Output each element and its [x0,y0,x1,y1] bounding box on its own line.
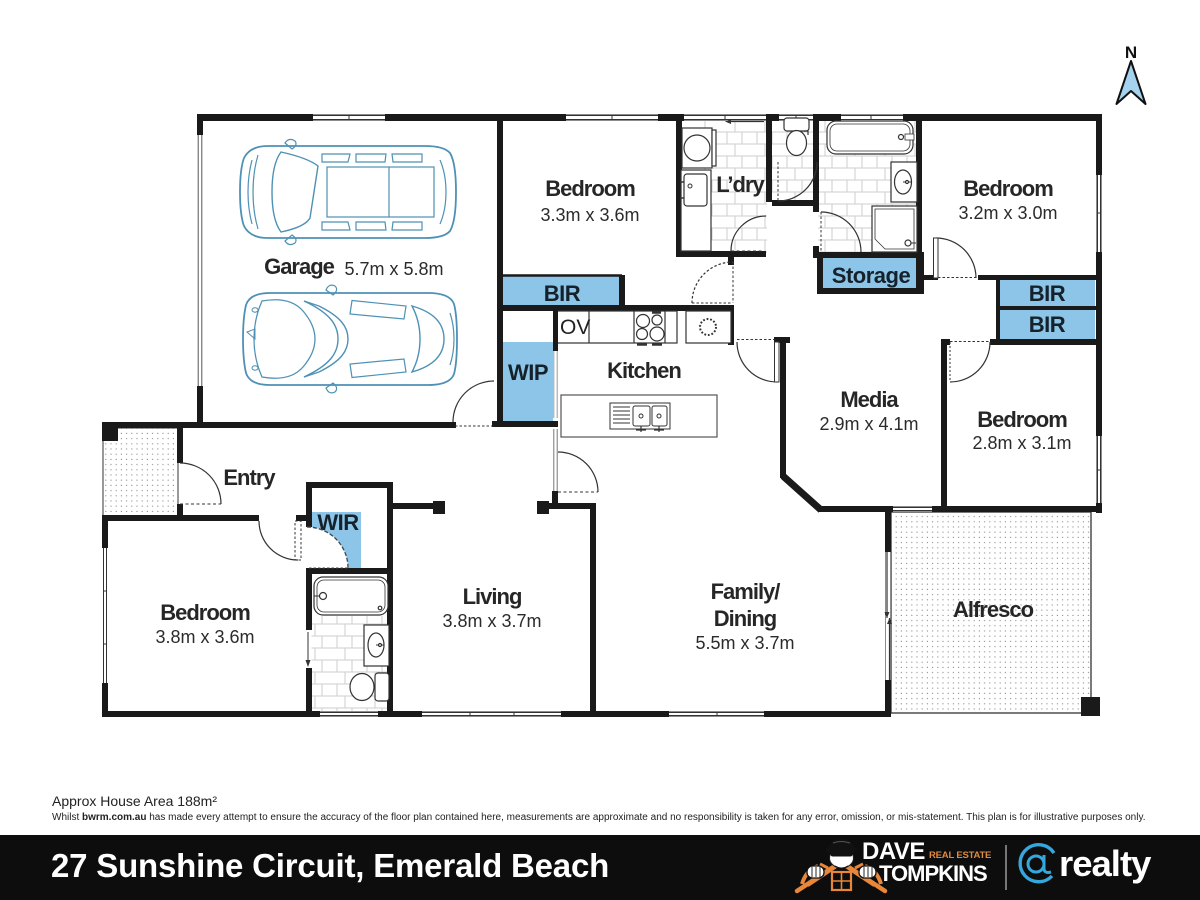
svg-text:2.8m x 3.1m: 2.8m x 3.1m [972,433,1071,453]
svg-text:5.7m x 5.8m: 5.7m x 5.8m [344,259,443,279]
svg-text:BIR: BIR [1029,312,1066,337]
svg-text:OV: OV [560,316,590,339]
svg-text:Whilst bwrm.com.au has made ev: Whilst bwrm.com.au has made every attemp… [52,812,1145,823]
svg-text:L’dry: L’dry [716,172,765,197]
svg-text:Kitchen: Kitchen [607,358,681,383]
svg-text:3.8m x 3.7m: 3.8m x 3.7m [442,611,541,631]
svg-text:Bedroom: Bedroom [977,407,1067,432]
svg-text:27 Sunshine Circuit, Emerald B: 27 Sunshine Circuit, Emerald Beach [51,847,609,884]
svg-text:3.3m x 3.6m: 3.3m x 3.6m [540,205,639,225]
svg-text:Media: Media [840,387,899,412]
svg-text:Living: Living [463,584,522,609]
svg-text:5.5m x 3.7m: 5.5m x 3.7m [695,633,794,653]
svg-text:TOMPKINS: TOMPKINS [879,861,987,886]
svg-text:Bedroom: Bedroom [963,176,1053,201]
svg-text:BIR: BIR [1029,281,1066,306]
svg-text:Entry: Entry [223,465,276,490]
svg-text:WIP: WIP [508,360,548,385]
svg-text:Family/: Family/ [711,579,781,604]
svg-text:realty: realty [1059,843,1152,884]
svg-text:Alfresco: Alfresco [953,597,1034,622]
svg-text:3.2m x 3.0m: 3.2m x 3.0m [958,203,1057,223]
svg-text:Storage: Storage [832,263,911,288]
svg-text:Bedroom: Bedroom [160,600,250,625]
svg-text:BIR: BIR [544,281,581,306]
svg-text:REAL ESTATE: REAL ESTATE [929,850,991,861]
svg-text:3.8m x 3.6m: 3.8m x 3.6m [155,627,254,647]
svg-text:N: N [1125,43,1137,62]
svg-text:Garage: Garage [264,254,335,279]
svg-text:2.9m x 4.1m: 2.9m x 4.1m [819,414,918,434]
svg-text:Bedroom: Bedroom [545,176,635,201]
svg-text:Dining: Dining [714,606,776,631]
svg-text:Approx House Area 188m²: Approx House Area 188m² [52,793,217,809]
